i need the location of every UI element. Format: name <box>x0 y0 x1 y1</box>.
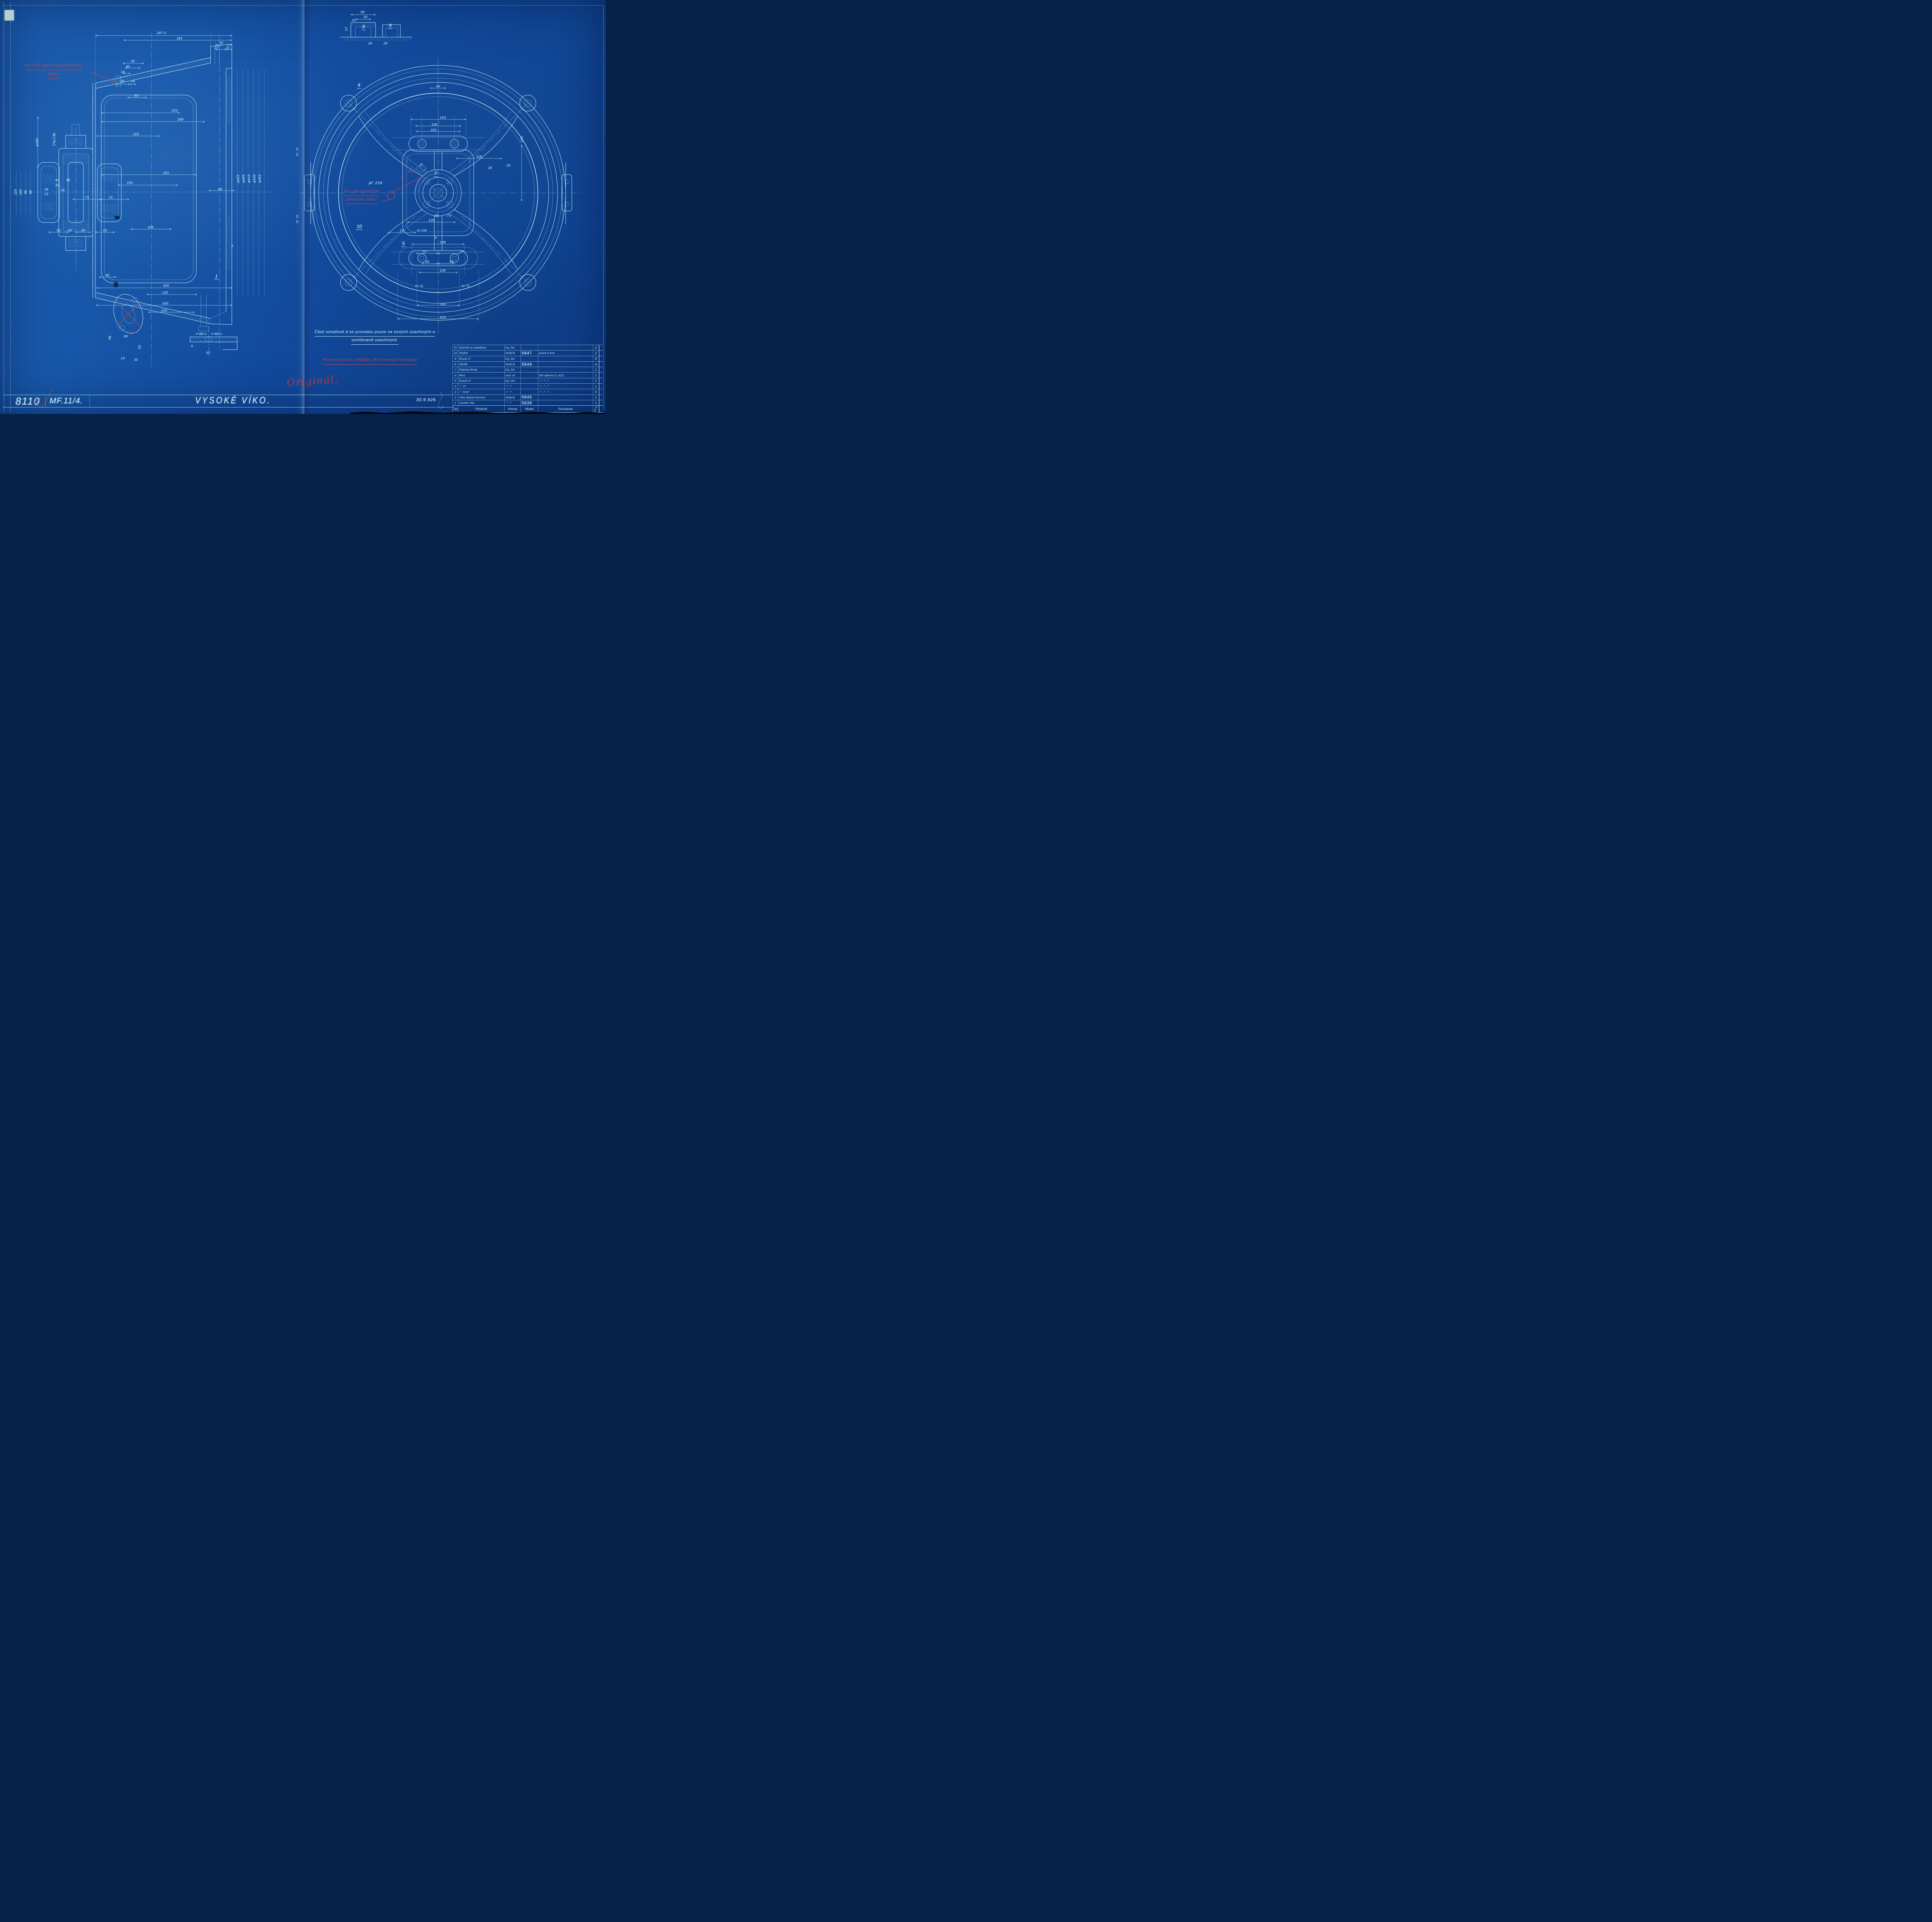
dimension-label: 18 <box>488 166 492 170</box>
parts-table-cell: 8 <box>452 362 458 367</box>
dimension-label: 55 <box>199 332 203 336</box>
parts-table-cell: 3 <box>452 389 458 394</box>
dimension-label: 17 <box>344 27 348 31</box>
machines-note: Části označené A se provedou pouze na st… <box>309 328 440 345</box>
dimension-label: 115 <box>430 128 436 132</box>
parts-table-header-row: ČástPředmětHmotaModelPoznámkaPočet kusů <box>452 405 603 413</box>
parts-table-header-cell: Část <box>452 406 458 412</box>
dimension-label: 45 <box>105 273 109 277</box>
parts-table-cell: 5839 <box>520 400 538 405</box>
sheet-title: VYSOKÉ VÍKO. <box>195 395 271 406</box>
dimension-label: 5 <box>191 344 193 348</box>
parts-table-cell: 9 <box>452 356 458 361</box>
parts-table-cell: kuj. žel. <box>504 356 520 361</box>
parts-table-cell: šedá lit. <box>504 362 520 367</box>
parts-table-cell: Vložka <box>458 350 504 355</box>
dimension-label: 36 <box>121 79 124 83</box>
dimension-label: 13 <box>44 192 48 196</box>
dimension-label: 38 <box>66 178 70 182</box>
parts-table-cell: Péro <box>458 372 504 378</box>
dimension-label: 25 <box>507 163 510 167</box>
parts-table-cell: Dle výkresu č. 8111. <box>538 372 593 378</box>
parts-table-cell: 2 <box>593 345 600 350</box>
dimension-label: φ416 <box>247 174 251 183</box>
dimension-label: 72 <box>400 229 404 233</box>
parts-table-cell: 4 <box>452 384 458 389</box>
dimension-label: kž 168 <box>417 229 427 232</box>
dimension-label: 18 <box>61 188 65 192</box>
red-note-left-line1: Po odlití upravit do původního <box>25 62 83 70</box>
dimension-label: 51 <box>206 351 210 355</box>
parts-table-cell: 1 <box>593 367 600 372</box>
dimension-label: 39 <box>81 228 85 232</box>
parts-table-cell: 7 <box>452 367 458 372</box>
drawing-revision-red: /II <box>34 396 41 406</box>
dimension-label: 163 <box>133 132 139 136</box>
dimension-label: 155 <box>127 181 133 185</box>
dimension-label: 85 <box>124 334 128 338</box>
dimension-label: 15 <box>226 46 230 49</box>
parts-table-cell: Svorník se závlačkou <box>458 345 504 350</box>
dimension-label: 268 <box>177 117 184 121</box>
dimension-label: 73 <box>447 214 451 218</box>
dimension-label: 30 <box>134 358 138 362</box>
red-note-right-line1: Po odlití upravit do <box>344 188 379 196</box>
part-balloon: 5 <box>401 241 406 247</box>
parts-table-cell: kuj. žel. <box>504 378 520 383</box>
dimension-label: 181 <box>177 36 183 40</box>
parts-table-cell: 11 <box>452 345 458 350</box>
dimension-label: 19 <box>121 356 125 360</box>
parts-table-row: 10Vložkašedá lit.5847pravé a levé2 <box>452 350 603 355</box>
parts-table-row: 3-″- 5/16″-″- -″--″- -″- -″-6 <box>452 389 603 394</box>
part-balloon: 9 <box>388 23 393 29</box>
dimension-label: φ455 <box>258 174 262 183</box>
parts-table-cell: 1 <box>452 400 458 405</box>
red-note-right: Po odlití upravit do původního stavu. <box>331 188 393 204</box>
parts-table-row: 9Šroub ¼″kuj. žel.4 <box>452 356 603 361</box>
part-balloon: 8 <box>362 24 366 30</box>
parts-table-cell: 1 <box>593 384 600 389</box>
parts-table-cell: kuj. žel. <box>504 345 520 350</box>
parts-table-cell <box>520 356 538 361</box>
parts-table-row: 1Vysoké víko-″- -″-58391 <box>452 400 603 405</box>
parts-table-cell: -″- -″- -″- <box>538 389 593 394</box>
parts-table-cell: 2 <box>452 395 458 400</box>
parts-table-cell: -″- -″- <box>504 400 520 405</box>
dimension-label: 55 <box>215 332 219 336</box>
machines-note-line2: ventilovaně uzavřených. <box>351 337 398 345</box>
parts-table-cell: 5846 <box>520 362 538 367</box>
blueprint-sheet: 247·5181422715554016361650203268163φ3852… <box>0 0 606 414</box>
parts-table-cell: 10 <box>452 350 458 355</box>
parts-table-cell: šedá lit. <box>504 350 520 355</box>
parts-table-row: 8Obrtlíkšedá lit.58464 <box>452 361 603 367</box>
dimension-label: 38 <box>435 214 439 218</box>
parts-table-cell: 1 <box>593 372 600 378</box>
parts-table-cell: -″- ¼″ <box>458 384 504 389</box>
parts-table-cell <box>520 367 538 372</box>
dimension-label: 30 <box>449 260 453 264</box>
dimension-label: φ445 <box>241 174 245 183</box>
parts-table-cell: 6 <box>593 389 600 394</box>
part-balloon: 2 <box>52 139 56 145</box>
parts-table-header-cell: Model <box>520 406 538 412</box>
parts-table-cell <box>538 367 593 372</box>
dimension-label: 22 <box>419 162 424 167</box>
parts-table-cell: 4 <box>593 356 600 361</box>
parts-table-cell: -″- -″- -″- <box>538 378 593 383</box>
parts-table-cell: 4 <box>593 362 600 367</box>
red-note-right-line2: původního stavu. <box>346 196 378 204</box>
dimension-label: kž 70 <box>462 284 469 288</box>
dimension-label: 251 <box>163 171 169 175</box>
parts-table-header-cell: Poznámka <box>538 406 593 412</box>
parts-table-cell: Šroub ½″ <box>458 378 504 383</box>
parts-table-cell <box>538 395 593 400</box>
dimension-label: 32 <box>55 183 59 187</box>
parts-table-row: 11Svorník se závlačkoukuj. žel.2 <box>452 345 603 350</box>
dimension-label: 52 <box>57 228 61 232</box>
parts-table-row: 5Šroub ½″kuj. žel.-″- -″- -″-1 <box>452 378 603 383</box>
part-balloon: 1 <box>214 274 219 280</box>
dimension-label: 88 <box>29 190 32 194</box>
parts-table-cell: 1 <box>593 395 600 400</box>
machines-note-line1: Části označené A se provedou pouze na st… <box>315 328 435 337</box>
dimension-label: 30 <box>68 228 72 232</box>
dimension-label: 27 <box>215 46 219 49</box>
parts-table-cell: -″- 5/16″ <box>458 389 504 394</box>
dimension-label: 210 <box>440 315 446 319</box>
parts-table-cell: kuj. žel. <box>504 367 520 372</box>
dimension-label: 57 <box>423 250 427 253</box>
dimension-label: př. 216 <box>369 181 383 185</box>
dimension-label: 203 <box>172 109 178 112</box>
parts-table-cell: Šroub ¼″ <box>458 356 504 361</box>
dimension-label: 125 <box>429 218 435 222</box>
dimension-label: 120 <box>161 308 167 312</box>
parts-table-cell <box>520 384 538 389</box>
parts-table-cell <box>520 372 538 378</box>
dimension-label: 3 <box>231 244 233 248</box>
parts-table-cell <box>538 356 593 361</box>
dimension-label: 5 <box>435 236 437 240</box>
parts-table-cell: Víko olejové komory <box>458 395 504 400</box>
parts-table-cell: 6 <box>452 372 458 378</box>
dimension-label: 105 <box>148 225 154 229</box>
parts-table-cell <box>520 378 538 383</box>
parts-table-cell: -″- -″- <box>504 389 520 394</box>
dimension-label: 38 <box>361 10 364 14</box>
red-note-left: Po odlití upravit do původního stavu! <box>13 62 94 79</box>
dimension-label: 98 <box>107 335 112 340</box>
dimension-label: φ425 <box>236 174 240 183</box>
dimension-label: φ385 <box>35 138 39 146</box>
dimension-label: 40 <box>436 84 440 88</box>
dimension-label: 130 <box>162 291 168 294</box>
part-balloon: 10 <box>356 224 362 230</box>
parts-table-cell: -″- -″- -″- <box>538 384 593 389</box>
parts-table-cell: šedá lit. <box>504 395 520 400</box>
dimension-label: 118 <box>431 122 437 126</box>
parts-table: 11Svorník se závlačkoukuj. žel.210Vložka… <box>452 345 603 414</box>
dimension-label: 84 <box>408 169 413 174</box>
parts-table-header-cell: Předmět <box>458 406 504 412</box>
dimension-label: 50 <box>103 228 107 232</box>
parts-table-header-cell: Počet kusů <box>593 406 600 412</box>
parts-table-cell: 5845 <box>520 395 538 400</box>
dimension-label: 143 <box>440 116 446 119</box>
part-balloon: 6 <box>52 132 56 138</box>
parts-table-cell <box>538 362 593 367</box>
dimension-label: 247·5 <box>157 31 166 35</box>
dimension-label: 73 <box>109 196 112 199</box>
red-note-left-line2: stavu! <box>48 70 60 79</box>
parts-table-cell <box>520 345 538 350</box>
dimension-label: 136 <box>440 240 446 244</box>
drawing-code: MF.11/4. <box>49 396 83 406</box>
dimension-label: 145 <box>520 136 524 142</box>
dimension-label: 24 <box>368 41 372 45</box>
parts-table-cell: Vysoké víko <box>458 400 504 405</box>
dimension-label: 16 <box>121 70 125 74</box>
red-note-bottom: Pro motory bez zvedáče, dle červených ko… <box>308 356 432 365</box>
parts-table-cell: 1 <box>593 400 600 405</box>
dimension-label: kž 70 <box>415 284 423 288</box>
dimension-label: 10 <box>296 215 299 218</box>
parts-table-cell: Obrtlík <box>458 362 504 367</box>
dimension-label: 12 <box>352 18 356 22</box>
dimension-label: 66 <box>218 187 222 191</box>
dimension-label: 110 <box>14 189 17 195</box>
red-note-bottom-text: Pro motory bez zvedáče, dle červených ko… <box>323 356 418 365</box>
parts-table-cell <box>520 389 538 394</box>
dimension-label: 57 <box>460 250 464 253</box>
dimension-label: 42 <box>219 41 223 44</box>
dimension-label: 55 <box>131 59 135 63</box>
dimension-label: 36 <box>44 187 48 191</box>
dimension-label: 52 <box>137 345 142 349</box>
dimension-label: 16 <box>131 79 135 83</box>
dimension-label: 430 <box>162 301 168 305</box>
dimension-label: 160 <box>19 189 22 195</box>
part-balloon: 4 <box>357 82 361 88</box>
dimension-label: 25 <box>364 15 367 19</box>
parts-table-cell: 2 <box>593 350 600 355</box>
parts-table-cell: 5847 <box>520 350 538 355</box>
dimension-label: 118 <box>476 155 482 158</box>
parts-table-cell: pravé a levé <box>538 350 593 355</box>
parts-table-cell: ocel. dr. <box>504 372 520 378</box>
dimension-label: 10 <box>296 148 299 151</box>
dimension-label: 26 <box>384 41 388 45</box>
parts-table-cell: 1 <box>593 378 600 383</box>
parts-table-cell <box>538 345 593 350</box>
dimension-label: 40 <box>126 65 130 68</box>
date-stamp: 30.9.926. <box>416 398 437 402</box>
dimension-label: 40 <box>55 178 59 182</box>
parts-table-cell: Pojistný šroub <box>458 367 504 372</box>
parts-table-cell: 5 <box>452 378 458 383</box>
parts-table-row: 6Péroocel. dr.Dle výkresu č. 8111.1 <box>452 372 603 378</box>
parts-table-row: 4-″- ¼″-″- -″--″- -″- -″-1 <box>452 383 603 389</box>
parts-table-row: 7Pojistný šroubkuj. žel.1 <box>452 367 603 372</box>
dimension-label: 73 <box>85 196 89 199</box>
dimension-label: 10 <box>296 153 299 156</box>
part-balloon: 7 <box>434 171 438 177</box>
dimension-label: 110 <box>440 302 446 306</box>
dimension-label: φ430 <box>252 174 256 183</box>
dimension-label: 420 <box>163 284 169 287</box>
parts-table-row: 2Víko olejové komoryšedá lit.58451 <box>452 395 603 400</box>
parts-table-cell: -″- -″- <box>504 384 520 389</box>
parts-table-cell <box>538 400 593 405</box>
dimension-label: 30 <box>425 260 429 264</box>
parts-table-header-cell: Hmota <box>504 406 520 412</box>
dimension-label: 10 <box>296 220 299 224</box>
dimension-label: 96 <box>24 190 27 194</box>
dimension-label: 100 <box>440 269 446 272</box>
dimension-label: 50 <box>134 94 138 97</box>
